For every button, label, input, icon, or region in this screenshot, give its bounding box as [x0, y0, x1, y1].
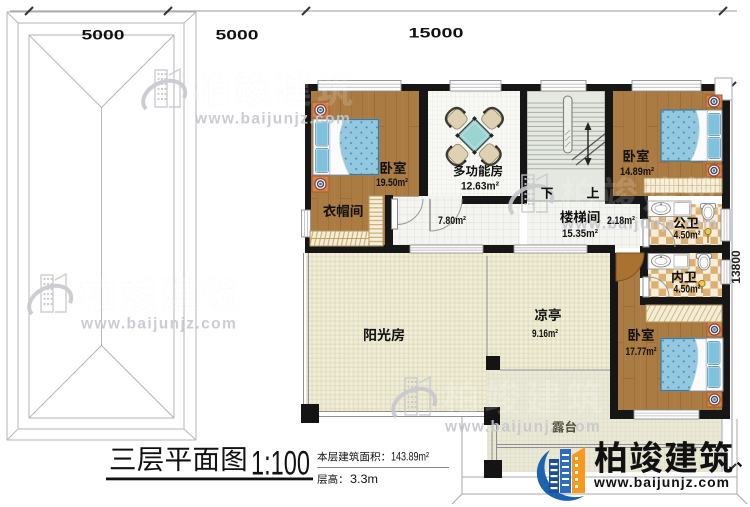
svg-text:13800: 13800 [729, 250, 743, 284]
svg-text:7.80m²: 7.80m² [438, 215, 466, 227]
svg-text:4.50m²: 4.50m² [674, 229, 701, 241]
svg-text:3.3m: 3.3m [350, 472, 378, 486]
svg-text:17.77m²: 17.77m² [626, 346, 657, 358]
svg-text:www.baijunjz.com: www.baijunjz.com [80, 315, 237, 332]
svg-text:1:100: 1:100 [251, 444, 310, 482]
svg-text:4.50m²: 4.50m² [674, 283, 701, 295]
svg-text:12.63m²: 12.63m² [461, 180, 499, 192]
svg-text:5000: 5000 [82, 28, 125, 43]
svg-text:www.baijunjz.com: www.baijunjz.com [593, 474, 730, 490]
svg-text:143.89m²: 143.89m² [391, 449, 429, 463]
svg-text:14.89m²: 14.89m² [620, 166, 654, 178]
svg-text:www.baijunjz.com: www.baijunjz.com [444, 418, 601, 435]
svg-text:2.18m²: 2.18m² [607, 215, 635, 227]
svg-text:19.50m²: 19.50m² [376, 177, 408, 189]
svg-text:9.16m²: 9.16m² [532, 328, 558, 340]
svg-text:www.baijunjz.com: www.baijunjz.com [194, 110, 351, 127]
svg-text:15.35m²: 15.35m² [562, 228, 598, 240]
svg-text:15000: 15000 [409, 26, 464, 41]
svg-text:5000: 5000 [216, 28, 259, 43]
